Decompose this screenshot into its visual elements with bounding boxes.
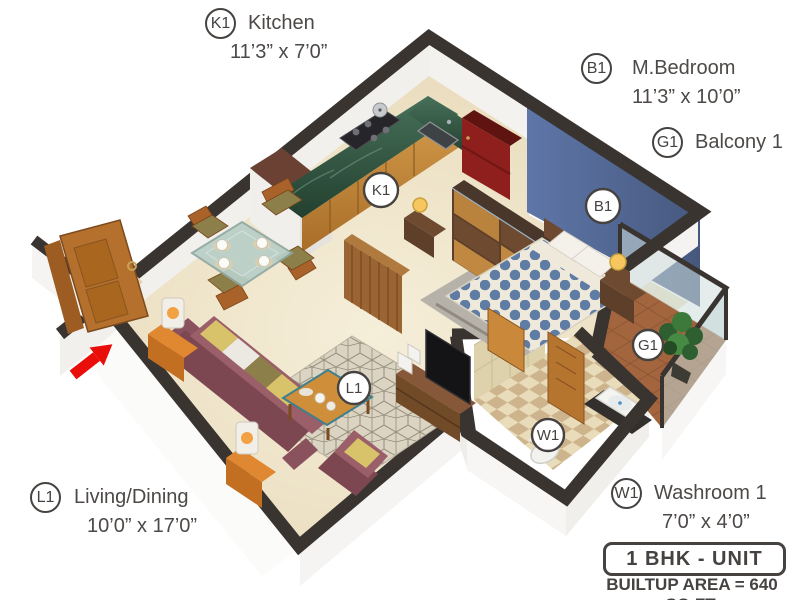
washroom-marker-label: W1 — [537, 427, 560, 444]
living-marker-label: L1 — [346, 380, 363, 397]
balcony-badge: G1 — [652, 127, 683, 158]
legend-washroom: W1 Washroom 1 7’0” x 4’0” — [611, 478, 767, 534]
washroom-badge: W1 — [611, 478, 642, 509]
bedroom-marker-label: B1 — [594, 198, 612, 215]
bedside-lamp — [610, 254, 626, 270]
kitchen-badge: K1 — [205, 8, 236, 39]
washroom-dims: 7’0” x 4’0” — [662, 511, 767, 534]
balcony-name: Balcony 1 — [695, 131, 783, 154]
living-name: Living/Dining — [74, 486, 189, 509]
legend-bedroom: B1 M.Bedroom 11’3” x 10’0” — [581, 53, 741, 109]
unit-type-box: 1 BHK - UNIT — [603, 542, 786, 576]
washroom-name: Washroom 1 — [654, 482, 767, 505]
balcony-marker-label: G1 — [638, 337, 658, 354]
kitchen-dims: 11’3” x 7’0” — [230, 41, 327, 64]
kitchen-name: Kitchen — [248, 12, 315, 35]
legend-balcony: G1 Balcony 1 — [652, 127, 783, 158]
bedside-lamp — [413, 198, 427, 212]
floor-plan-image: K1 B1 G1 L1 W1 K1 Kitchen 11’3” x 7’0” B… — [0, 0, 800, 600]
living-badge: L1 — [30, 482, 61, 513]
living-dims: 10’0” x 17’0” — [87, 515, 197, 538]
legend-living: L1 Living/Dining 10’0” x 17’0” — [30, 482, 197, 538]
kitchen-marker-label: K1 — [372, 182, 390, 199]
bedroom-badge: B1 — [581, 53, 612, 84]
bedroom-dims: 11’3” x 10’0” — [632, 86, 741, 109]
bedroom-name: M.Bedroom — [632, 57, 735, 80]
builtup-area-label: BUILTUP AREA = 640 SQ.FT. — [586, 575, 798, 600]
legend-kitchen: K1 Kitchen 11’3” x 7’0” — [205, 8, 327, 64]
